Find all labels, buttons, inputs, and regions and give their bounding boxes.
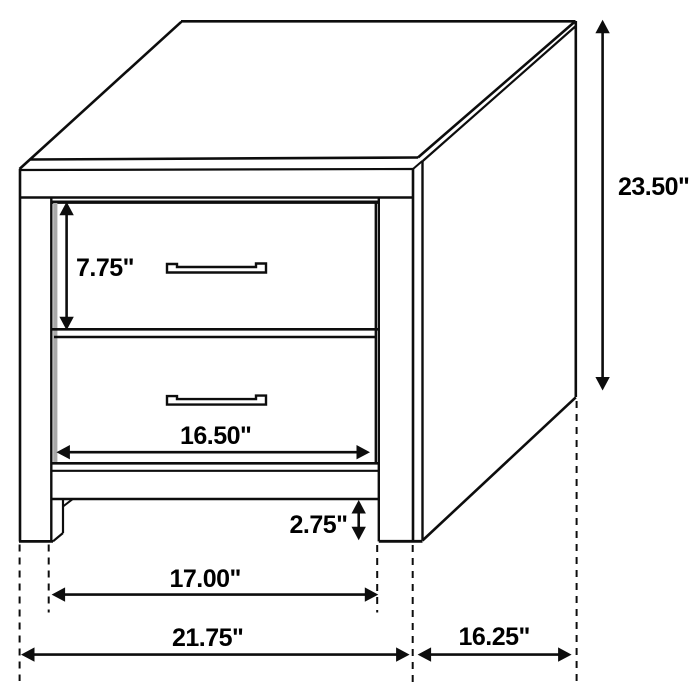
svg-text:16.50": 16.50" [180, 422, 251, 450]
svg-text:2.75": 2.75" [290, 511, 348, 539]
svg-text:17.00": 17.00" [170, 565, 241, 593]
svg-text:7.75": 7.75" [76, 254, 134, 282]
svg-text:21.75": 21.75" [172, 624, 243, 652]
svg-text:16.25": 16.25" [459, 623, 530, 651]
svg-text:23.50": 23.50" [618, 173, 689, 201]
